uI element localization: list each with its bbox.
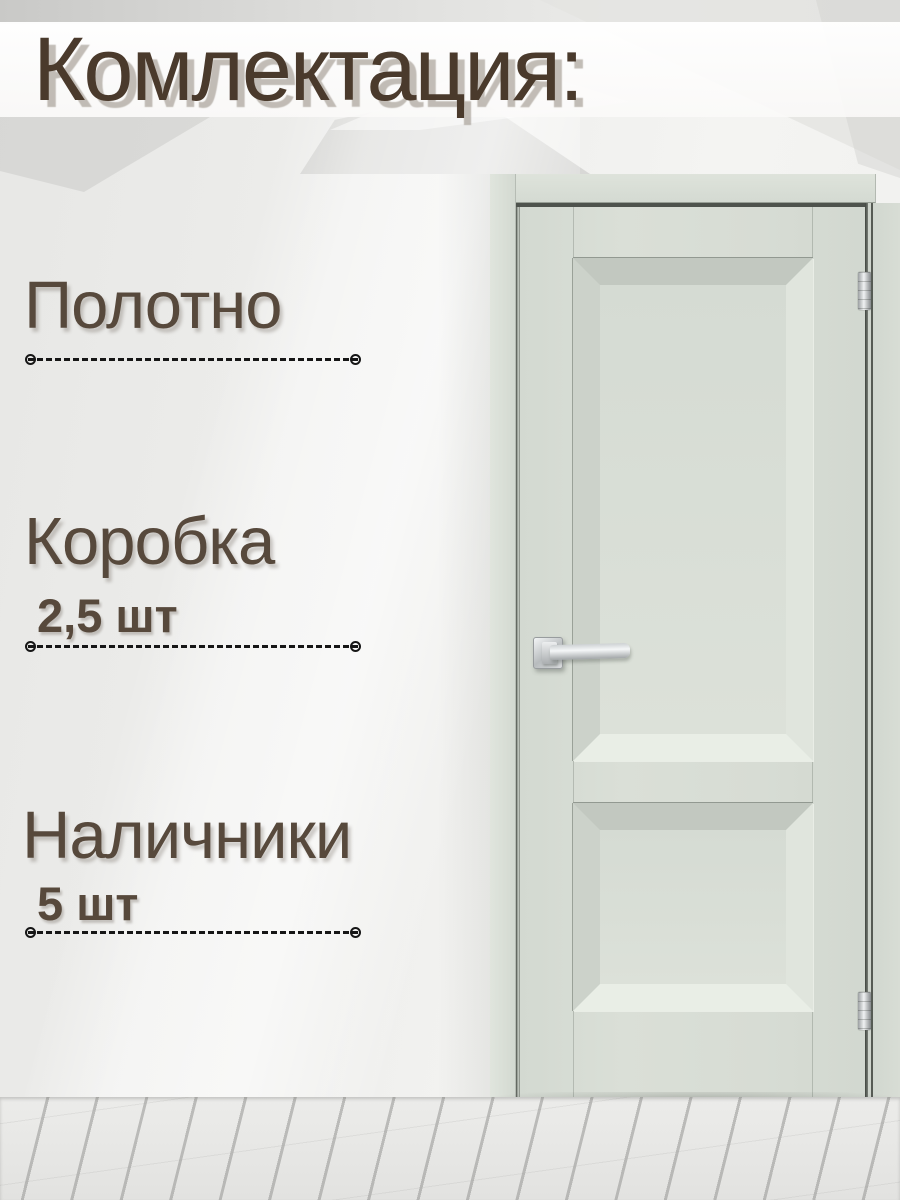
door-hinge-bottom [858, 992, 871, 1030]
dashed-separator [28, 931, 358, 934]
item-name-polotno: Полотно [24, 272, 282, 339]
door-gap-right [871, 203, 873, 1100]
title-band: Комлектация: [0, 22, 900, 117]
door-casing-right [873, 203, 900, 1100]
door-illustration [490, 174, 900, 1100]
page-title: Комлектация: [33, 23, 582, 118]
item-name-nalichniki: Наличники [22, 802, 351, 869]
door-panel-lower [573, 803, 813, 1011]
item-qty-korobka: 2,5 шт [37, 592, 178, 639]
door-casing-top [490, 174, 876, 203]
wall-facet [0, 117, 210, 192]
product-image: Комлектация: Полотно Коробка 2,5 шт Нали… [0, 0, 900, 1200]
wall-shadow [438, 174, 490, 1097]
door-panel-field [600, 285, 786, 734]
door-hinge-top [858, 272, 871, 310]
item-qty-nalichniki: 5 шт [37, 880, 138, 927]
item-name-korobka: Коробка [24, 508, 274, 575]
door-handle-lever [550, 643, 630, 660]
dashed-separator [28, 358, 358, 361]
door-casing-left [490, 174, 516, 1100]
door-panel-upper [573, 258, 813, 761]
wood-floor [0, 1097, 900, 1200]
dashed-separator [28, 645, 358, 648]
door-panel-field [600, 830, 786, 984]
